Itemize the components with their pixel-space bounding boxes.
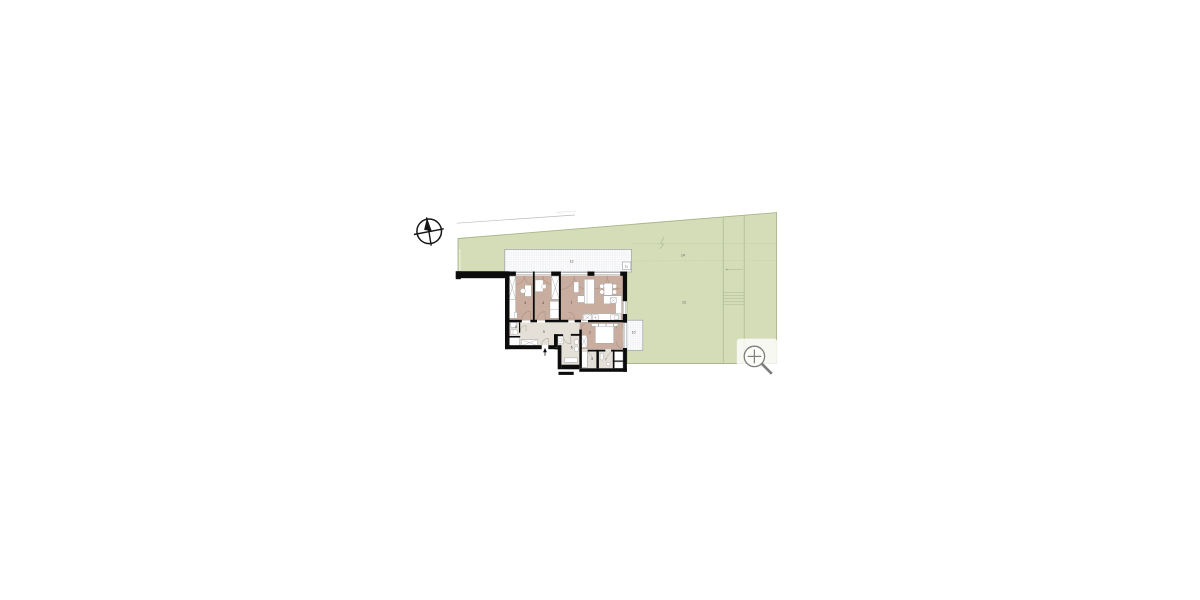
svg-text:1: 1 <box>571 300 573 304</box>
svg-text:8: 8 <box>515 325 517 329</box>
svg-text:7: 7 <box>605 357 607 361</box>
svg-text:13: 13 <box>682 301 686 305</box>
svg-text:9: 9 <box>543 330 545 334</box>
svg-text:4: 4 <box>542 301 544 305</box>
svg-text:14: 14 <box>681 254 685 258</box>
svg-text:3: 3 <box>524 301 526 305</box>
svg-text:2: 2 <box>589 330 591 334</box>
svg-text:12: 12 <box>570 260 574 264</box>
svg-text:10: 10 <box>632 331 636 335</box>
svg-text:5: 5 <box>591 357 593 361</box>
svg-text:11: 11 <box>625 264 628 268</box>
svg-text:6: 6 <box>571 346 573 350</box>
